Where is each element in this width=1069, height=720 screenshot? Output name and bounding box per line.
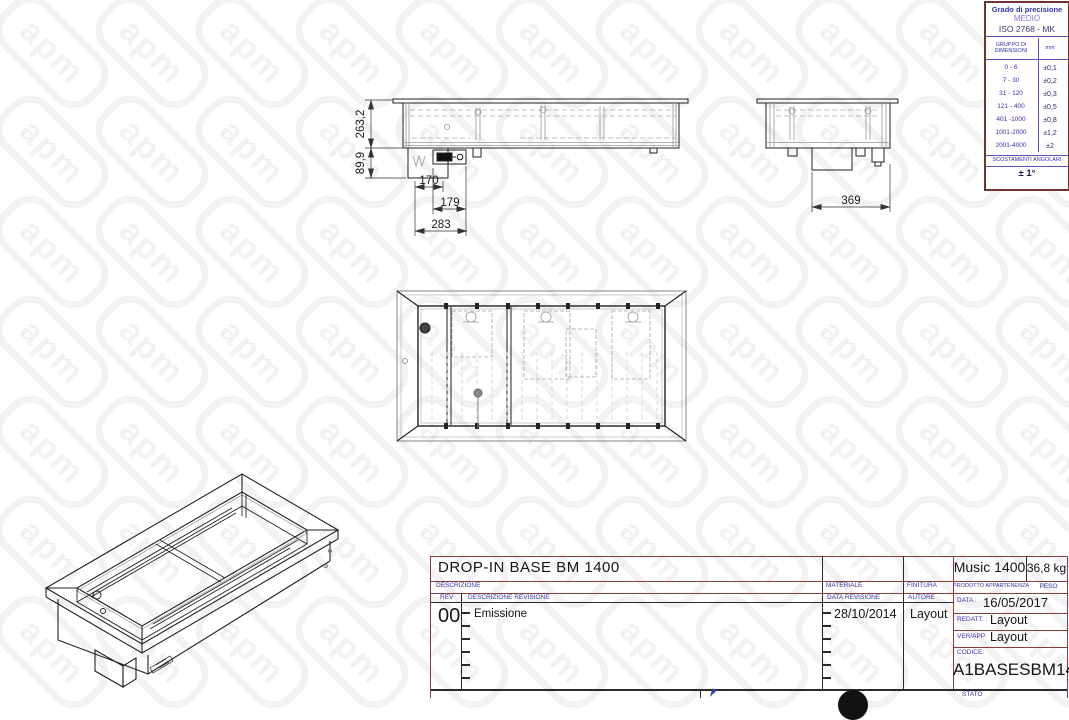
drawing-title: DROP-IN BASE BM 1400 bbox=[438, 560, 620, 575]
tolerance-value: ±0,1 bbox=[1036, 65, 1064, 72]
element-heads bbox=[463, 312, 641, 322]
cursor-icon bbox=[710, 688, 718, 698]
tolerance-row: 7 - 30±0,2 bbox=[986, 75, 1068, 88]
side-view: 369 bbox=[757, 99, 898, 212]
descrizione-revisione-label: DESCRIZIONE REVISIONE bbox=[468, 595, 550, 602]
top-view bbox=[397, 291, 686, 441]
tolerance-range: 7 - 30 bbox=[986, 78, 1036, 85]
rev-label: REV bbox=[440, 595, 453, 602]
data-revisione-label: DATA REVISIONE bbox=[827, 595, 880, 602]
descrizione-label: DESCRIZIONE bbox=[436, 583, 480, 590]
weight-value: 36,8 kg bbox=[1026, 562, 1067, 574]
finitura-label: FINITURA bbox=[907, 583, 937, 590]
tolerance-value: ±2 bbox=[1036, 143, 1064, 150]
materiale-label: MATERIALE bbox=[826, 583, 862, 590]
autore-label: AUTORE bbox=[908, 595, 935, 602]
line bbox=[700, 690, 701, 698]
revision-tick bbox=[461, 612, 470, 614]
tolerance-row: 1001-2000±1,2 bbox=[986, 127, 1068, 140]
angular-deviation-label: SCOSTAMENTI ANGOLARI bbox=[986, 158, 1068, 164]
tolerance-value: ±0,3 bbox=[1036, 91, 1064, 98]
redatt-label: REDATT. : bbox=[957, 617, 987, 624]
revision-description: Emissione bbox=[474, 609, 527, 621]
line bbox=[903, 556, 904, 689]
tolerance-range: 0 - 6 bbox=[986, 65, 1036, 72]
dim-263: 263,2 bbox=[355, 110, 367, 139]
line bbox=[430, 602, 953, 603]
tolerance-row: 0 - 6±0,1 bbox=[986, 62, 1068, 75]
front-view: 263,2 89,9 170 179 283 bbox=[355, 99, 688, 236]
tolerance-value: ±0,8 bbox=[1036, 117, 1064, 124]
revision-tick bbox=[822, 625, 831, 627]
dim-369: 369 bbox=[841, 195, 860, 207]
rib-dashes bbox=[432, 352, 657, 421]
tolerance-range: 2001-4000 bbox=[986, 143, 1036, 150]
revision-tick bbox=[461, 664, 470, 666]
tolerance-row: 121 - 400±0,5 bbox=[986, 101, 1068, 114]
rev-value: 00 bbox=[438, 606, 460, 626]
tolerance-header: GRUPPO DI DIMENSIONI mm bbox=[986, 39, 1068, 59]
revision-tick bbox=[822, 677, 831, 679]
line bbox=[430, 581, 1068, 582]
product-name: Music 1400 bbox=[953, 560, 1026, 574]
verapp-label: VER/APP. bbox=[957, 634, 986, 641]
divider-line bbox=[986, 155, 1068, 156]
tolerance-col2-header: mm bbox=[1036, 46, 1064, 52]
divider-line bbox=[986, 59, 1068, 60]
revision-tick bbox=[461, 625, 470, 627]
revision-tick bbox=[822, 651, 831, 653]
tolerance-rows: 0 - 6±0,17 - 30±0,231 - 120±0,3121 - 400… bbox=[986, 62, 1068, 153]
line bbox=[430, 556, 431, 698]
lower-drain-icon bbox=[474, 389, 482, 428]
tolerance-value: ±1,2 bbox=[1036, 130, 1064, 137]
tolerance-row: 2001-4000±2 bbox=[986, 140, 1068, 153]
revision-tick bbox=[822, 664, 831, 666]
revision-tick bbox=[461, 638, 470, 640]
dim-283: 283 bbox=[431, 219, 450, 231]
author-value: Layout bbox=[910, 608, 948, 621]
verapp-value: Layout bbox=[990, 631, 1028, 644]
revision-tick bbox=[461, 651, 470, 653]
revision-tick bbox=[822, 638, 831, 640]
redatt-value: Layout bbox=[990, 614, 1028, 627]
tolerance-range: 401 -1000 bbox=[986, 117, 1036, 124]
divider-line bbox=[986, 166, 1068, 167]
data-label: DATA : bbox=[957, 598, 977, 605]
front-dimensions bbox=[365, 100, 467, 236]
revision-tick bbox=[461, 677, 470, 679]
isometric-view bbox=[46, 474, 338, 687]
drain-icon bbox=[420, 323, 430, 333]
line bbox=[461, 593, 462, 689]
title-block: DROP-IN BASE BM 1400 DESCRIZIONE MATERIA… bbox=[430, 556, 1068, 698]
tolerance-value: ±0,2 bbox=[1036, 78, 1064, 85]
line bbox=[953, 647, 1068, 648]
tolerance-grade: MEDIO bbox=[986, 15, 1068, 23]
tolerance-value: ±0,5 bbox=[1036, 104, 1064, 111]
line bbox=[430, 556, 1068, 557]
peso-label: PESO bbox=[1030, 584, 1067, 591]
vent-icon bbox=[413, 156, 425, 166]
tolerance-range: 1001-2000 bbox=[986, 130, 1036, 137]
date-value: 16/05/2017 bbox=[983, 596, 1048, 609]
tolerance-range: 121 - 400 bbox=[986, 104, 1036, 111]
tolerance-table: Grado di precisione MEDIO ISO 2768 - MK … bbox=[984, 1, 1069, 191]
prodotto-label: PRODOTTO APPARTENENZA bbox=[953, 584, 1026, 590]
dim-170: 170 bbox=[419, 175, 438, 187]
dim-89: 89,9 bbox=[355, 152, 367, 174]
tolerance-range: 31 - 120 bbox=[986, 91, 1036, 98]
dim-179: 179 bbox=[440, 197, 459, 209]
line bbox=[822, 556, 823, 689]
code-value: A1BASESBM14 bbox=[953, 661, 1067, 678]
heating-elements bbox=[452, 311, 650, 379]
angular-deviation-value: ± 1° bbox=[986, 169, 1068, 179]
plug-icon bbox=[433, 150, 466, 164]
tolerance-standard: ISO 2768 - MK bbox=[986, 25, 1068, 34]
divider-line bbox=[1038, 38, 1039, 152]
codice-label: CODICE: bbox=[957, 650, 984, 657]
tolerance-row: 31 - 120±0,3 bbox=[986, 88, 1068, 101]
drain-stub bbox=[473, 148, 481, 157]
tolerance-title: Grado di precisione bbox=[986, 6, 1068, 14]
revision-tick bbox=[822, 612, 831, 614]
revision-date: 28/10/2014 bbox=[834, 608, 897, 621]
tolerance-col1-header: GRUPPO DI DIMENSIONI bbox=[986, 43, 1036, 55]
tolerance-row: 401 -1000±0,8 bbox=[986, 114, 1068, 127]
divider-line bbox=[986, 36, 1068, 37]
stamp-circle bbox=[838, 690, 868, 720]
